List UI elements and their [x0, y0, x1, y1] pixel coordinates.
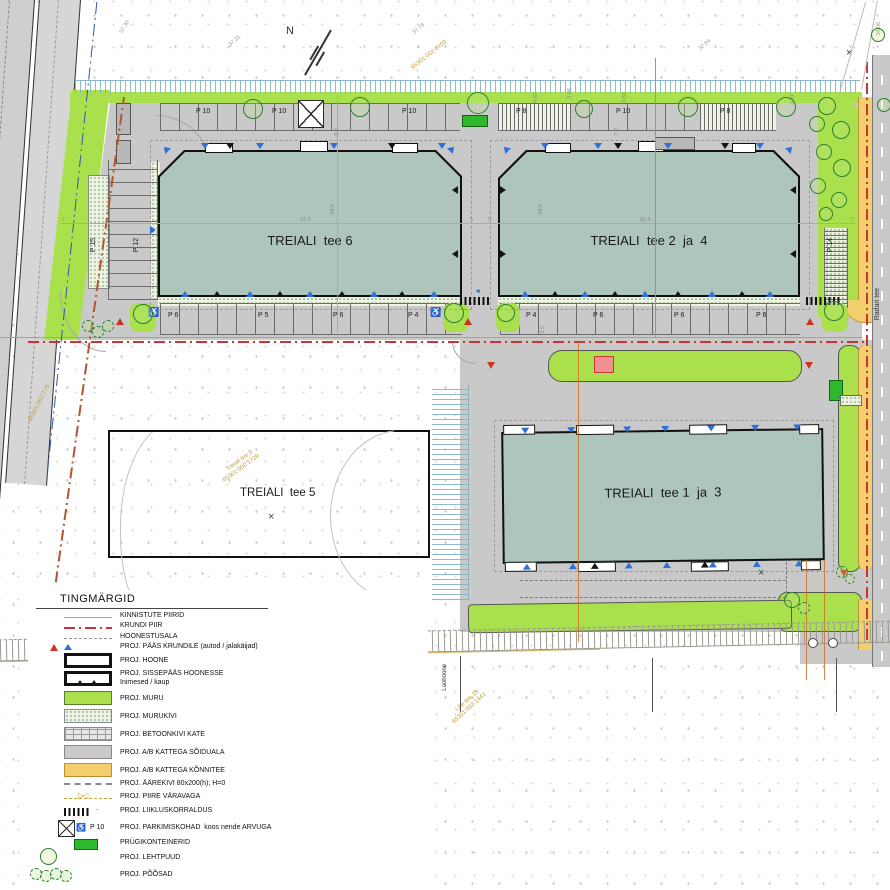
- parking-label: P 15: [90, 238, 97, 252]
- legend-item-muru: PROJ. MURU: [28, 690, 418, 707]
- legend-item-hoone: PROJ. HOONE: [28, 651, 418, 669]
- legend-item-sissepaas: PROJ. SISSEPÄÄS HOONESSE Inimesed / kaup: [28, 669, 418, 689]
- legend-item-konnitee: PROJ. A/B KATTEGA KÕNNITEE: [28, 762, 418, 779]
- car-access: [116, 318, 124, 325]
- wheelchair-icon: ♿: [430, 308, 441, 317]
- legend-item-parkimiskohad: ♿ P 10 PROJ. PARKIMISKOHAD koos nende AR…: [28, 820, 418, 837]
- road-label-radari: Radari tee: [874, 288, 881, 320]
- road-radari: [872, 55, 890, 667]
- traffic-marking-1: [460, 297, 490, 305]
- cadastral-lille19: Lille tee 1965301:002:1441: [442, 681, 493, 731]
- legend-item-aarekivi: PROJ. ÄÄREKIVI 80x200(h); H=0: [28, 779, 418, 793]
- parking-label: P 8: [720, 108, 730, 115]
- parking-label: P 10: [402, 108, 416, 115]
- legend-item-lehtpuud: PROJ. LEHTPUUD: [28, 850, 418, 866]
- parking-label: P 4: [526, 312, 536, 319]
- legend-item-piire: ▷◁ PROJ. PIIRE VÄRAVAGA: [28, 792, 418, 806]
- gate-box: [298, 100, 324, 128]
- car-access: [487, 362, 495, 369]
- car-access: [806, 318, 814, 325]
- parking-row-b24-top-p8b: [700, 103, 776, 131]
- ditch-east-of-tee5: [432, 385, 469, 600]
- legend-title: TINGMÄRGID: [60, 594, 135, 606]
- parking-label: P 10: [616, 108, 630, 115]
- krundi-piir-east: [866, 60, 868, 640]
- parking-label: P 6: [674, 312, 684, 319]
- building-label: TREIALI tee 6: [158, 234, 462, 248]
- wheelchair-icon: ♿: [76, 823, 86, 832]
- trash-containers-top: [462, 115, 488, 127]
- krundi-piir-south: [28, 341, 866, 343]
- parking-label: P 10: [272, 108, 286, 115]
- building-label: TREIALI tee 2 ja 4: [498, 234, 800, 248]
- site-plan: Radari tee TREIALI tee 6 TREIALI tee 2 j…: [0, 0, 890, 890]
- legend-item-betoonkivi: PROJ. BETOONKIVI KATE: [28, 726, 418, 743]
- parking-label: P 6: [333, 312, 343, 319]
- parking-row-b24-top-p8a: [498, 103, 570, 131]
- north-arrow: [304, 30, 331, 76]
- parking-label: P 6: [756, 312, 766, 319]
- legend-item-murukivi: PROJ. MURUKIVI: [28, 708, 418, 725]
- lawn-top-band: [70, 92, 862, 103]
- parking-label: P 6: [168, 312, 178, 319]
- lawn-middle-island: [548, 350, 802, 382]
- parking-label: P 14: [827, 238, 834, 252]
- parking-label: P 8: [516, 108, 526, 115]
- laohoone-label: Laohoone: [442, 664, 448, 691]
- cadastral-top: 65301:002:0703: [410, 39, 449, 71]
- parking-label: P 6: [593, 312, 603, 319]
- legend-item-liikluskorraldus: ← PROJ. LIIKLUSKORRALDUS: [28, 806, 418, 820]
- parking-label: P 5: [258, 312, 268, 319]
- parking-label: P 12: [133, 238, 140, 252]
- parking-label: P 10: [196, 108, 210, 115]
- car-access: [464, 318, 472, 325]
- legend-item-soiduala: PROJ. A/B KATTEGA SÕIDUALA: [28, 744, 418, 761]
- north-arrow-label: N: [286, 26, 294, 38]
- parking-label: P 4: [408, 312, 418, 319]
- ditch-top: [75, 80, 860, 93]
- car-access: [805, 362, 813, 369]
- building-treiali-tee-1-3: TREIALI tee 1 ja 3: [493, 418, 839, 576]
- substation-square: [594, 356, 614, 373]
- legend: TINGMÄRGID KINNISTUTE PIIRID KRUNDI PIIR…: [28, 590, 428, 885]
- legend-item-poosad: PROJ. PÕÕSAD: [28, 866, 418, 882]
